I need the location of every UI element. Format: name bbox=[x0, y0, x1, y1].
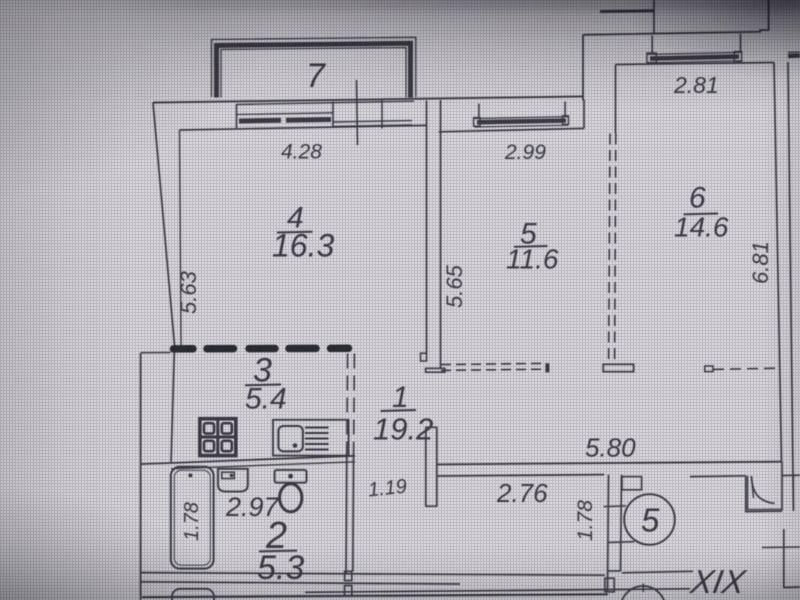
svg-text:4.28: 4.28 bbox=[281, 141, 322, 164]
svg-text:19.2: 19.2 bbox=[373, 412, 433, 447]
svg-text:11.6: 11.6 bbox=[506, 244, 559, 275]
svg-text:6: 6 bbox=[689, 182, 706, 215]
svg-text:1: 1 bbox=[392, 381, 409, 414]
svg-text:5.63: 5.63 bbox=[176, 270, 201, 314]
svg-text:14.6: 14.6 bbox=[674, 212, 729, 243]
svg-text:5: 5 bbox=[641, 502, 660, 539]
svg-text:1.19: 1.19 bbox=[367, 476, 408, 502]
svg-text:5.80: 5.80 bbox=[585, 433, 636, 463]
svg-text:5.4: 5.4 bbox=[245, 383, 287, 416]
svg-text:2.99: 2.99 bbox=[504, 141, 546, 164]
svg-text:5.65: 5.65 bbox=[442, 264, 467, 308]
svg-text:2.76: 2.76 bbox=[496, 478, 548, 508]
svg-text:1.78: 1.78 bbox=[574, 500, 597, 541]
